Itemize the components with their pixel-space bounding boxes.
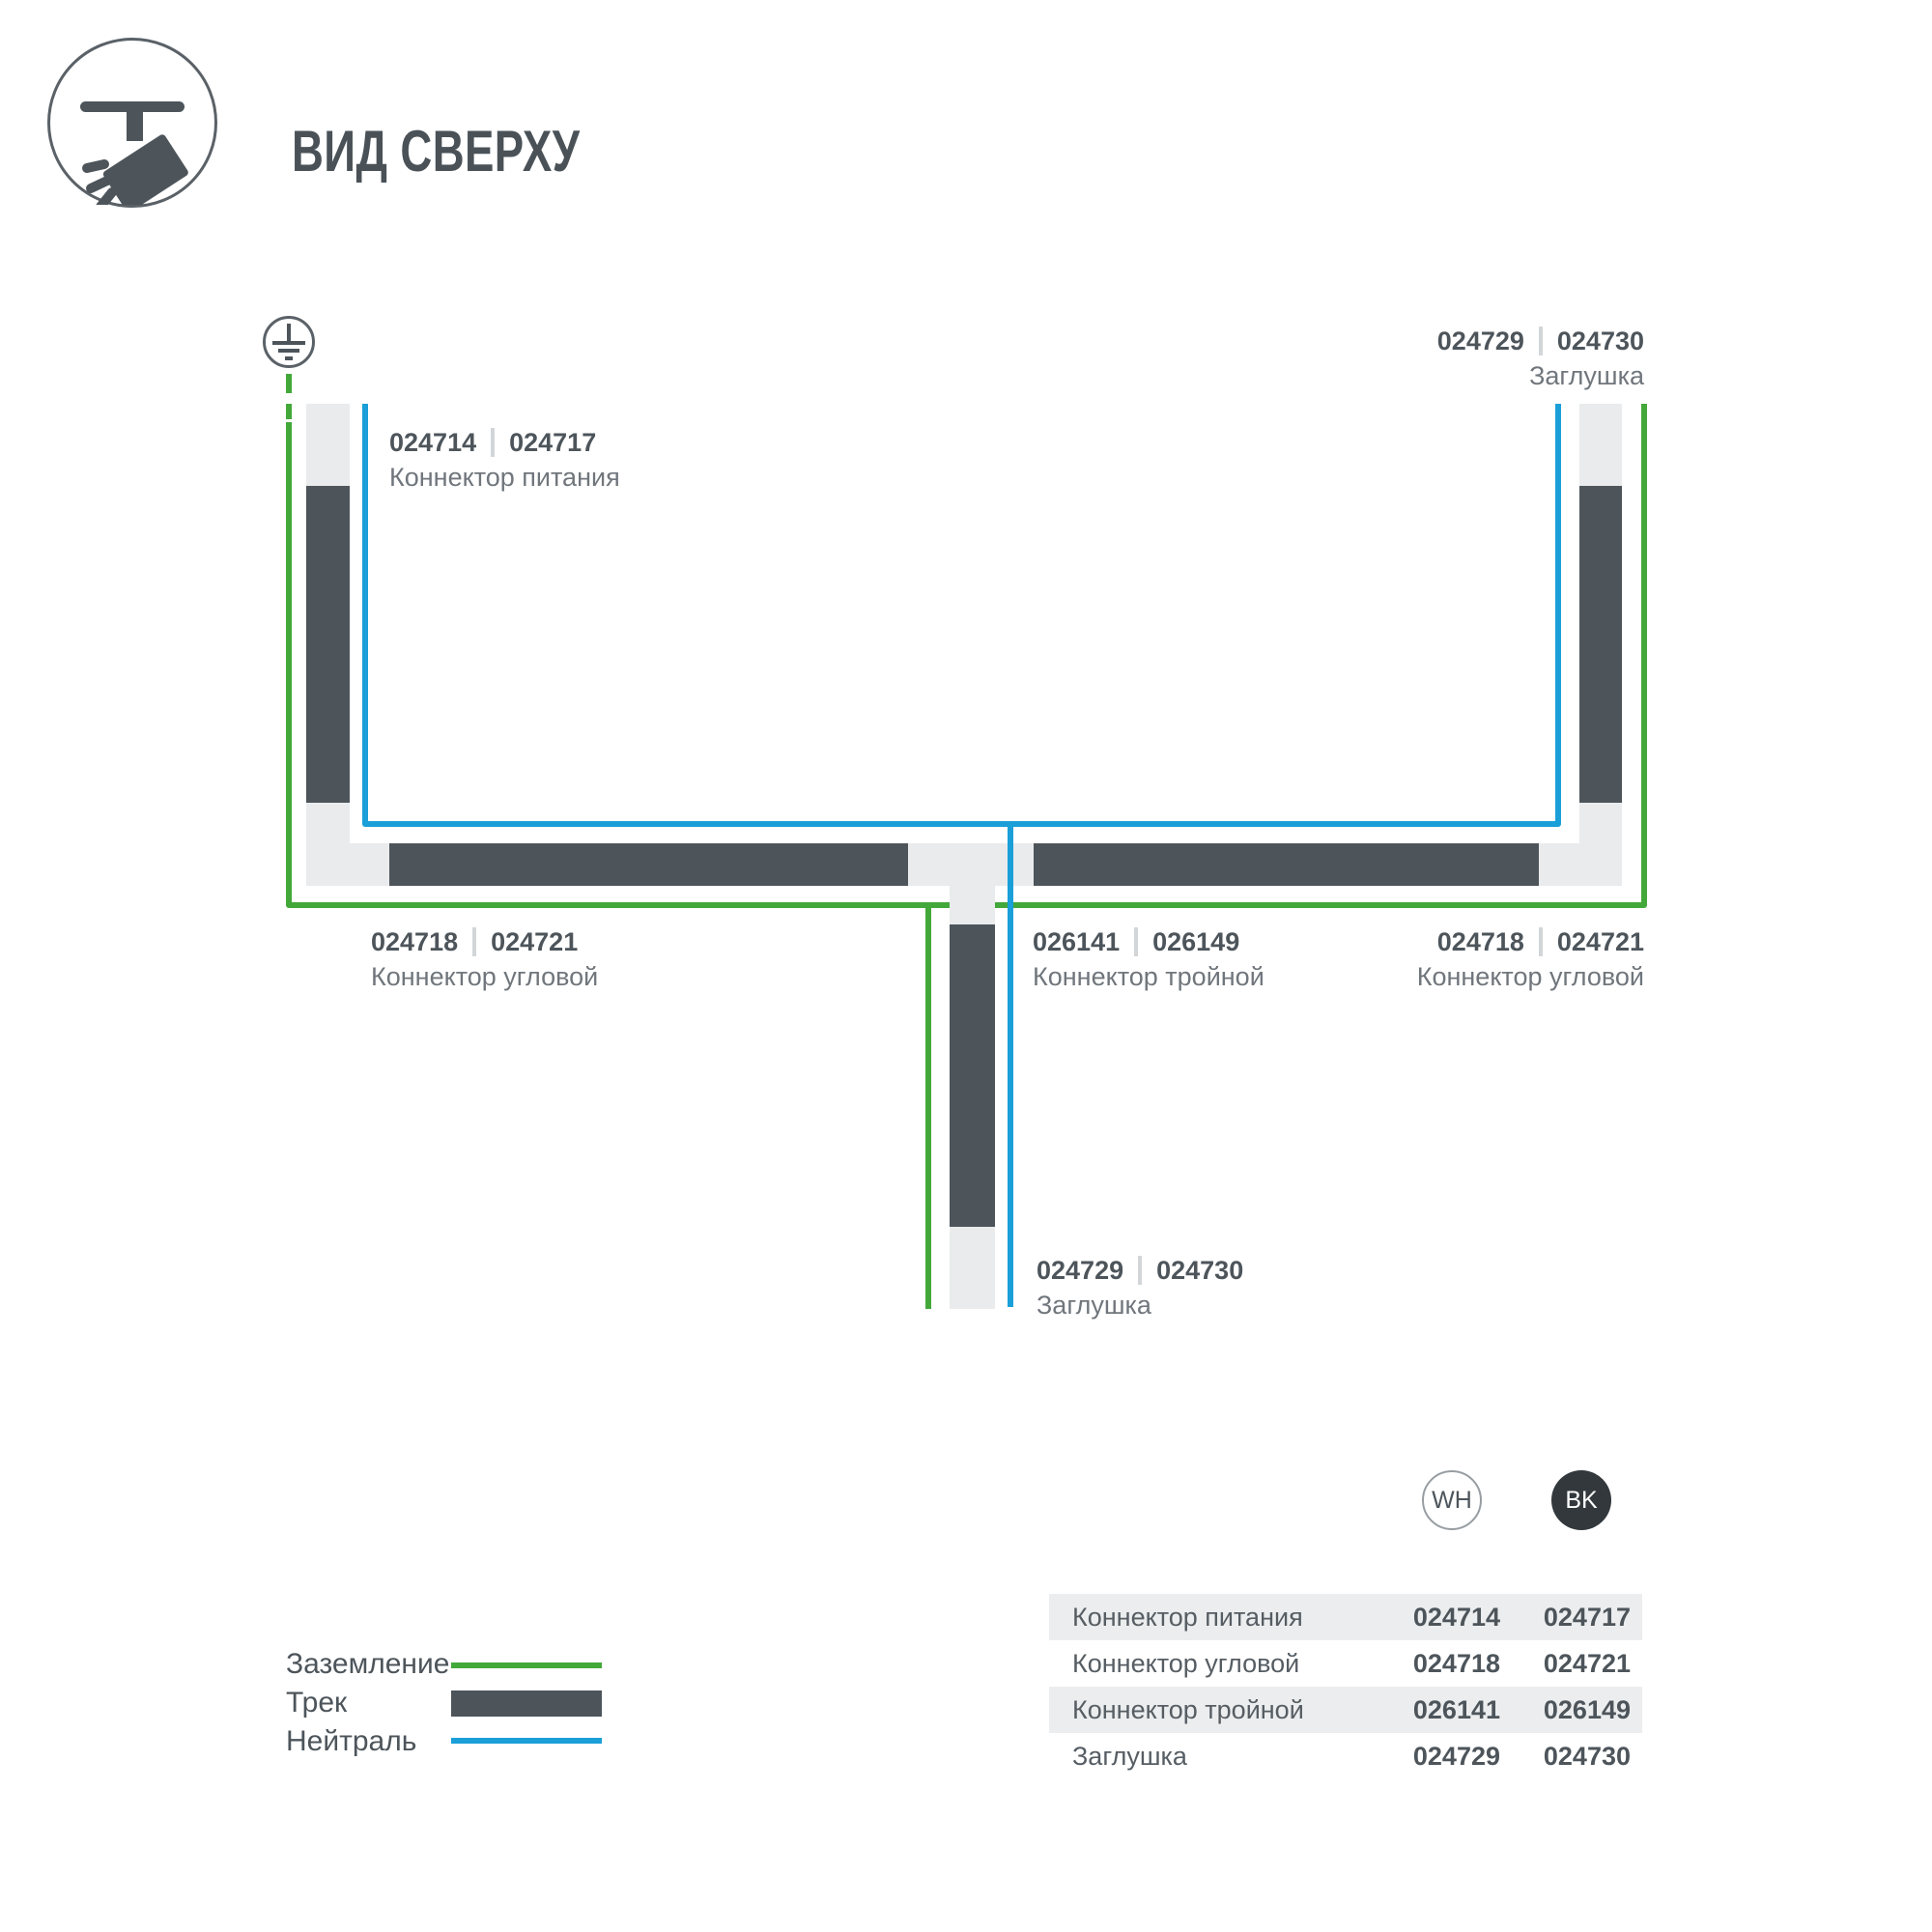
part-code-wh: 024729 [1384, 1742, 1500, 1772]
table-row: Коннектор тройной 026141 026149 [1049, 1687, 1642, 1733]
label-end-cap-top-codes: 024729 024730 [1437, 325, 1644, 357]
label-end-cap-top: 024729 024730 Заглушка [1437, 325, 1644, 392]
label-triple-connector: 026141 026149 Коннектор тройной [1033, 925, 1264, 993]
part-code-wh: 024718 [1384, 1649, 1500, 1679]
label-triple-connector-name: Коннектор тройной [1033, 960, 1264, 993]
code-separator [1539, 327, 1543, 355]
part-name: Заглушка [1072, 1742, 1384, 1772]
code-bk: 024717 [509, 428, 596, 458]
label-end-cap-top-name: Заглушка [1437, 359, 1644, 392]
table-row: Заглушка 024729 024730 [1049, 1733, 1642, 1779]
label-end-cap-bottom-codes: 024729 024730 [1037, 1254, 1243, 1287]
page: ВИД СВЕРХУ [0, 0, 1932, 1932]
code-separator [1539, 927, 1543, 956]
part-name: Коннектор угловой [1072, 1649, 1384, 1679]
code-separator [1138, 1256, 1142, 1285]
label-power-connector-name: Коннектор питания [389, 461, 620, 494]
code-separator [1134, 927, 1138, 956]
code-bk: 024730 [1557, 327, 1644, 356]
parts-table: Коннектор питания 024714 024717 Коннекто… [1049, 1594, 1642, 1779]
part-name: Коннектор питания [1072, 1603, 1384, 1633]
code-wh: 024718 [1437, 927, 1524, 957]
part-code-bk: 024730 [1500, 1742, 1631, 1772]
code-wh: 024718 [371, 927, 458, 957]
label-triple-connector-codes: 026141 026149 [1033, 925, 1264, 958]
code-separator [472, 927, 476, 956]
part-code-bk: 024721 [1500, 1649, 1631, 1679]
label-end-cap-bottom: 024729 024730 Заглушка [1037, 1254, 1243, 1321]
code-bk: 024730 [1156, 1256, 1243, 1286]
part-name: Коннектор тройной [1072, 1695, 1384, 1725]
part-code-bk: 024717 [1500, 1603, 1631, 1633]
ground-icon [263, 316, 315, 368]
code-bk: 024721 [491, 927, 578, 957]
label-power-connector-codes: 024714 024717 [389, 426, 620, 459]
label-corner-left-codes: 024718 024721 [371, 925, 598, 958]
label-corner-right-name: Коннектор угловой [1417, 960, 1644, 993]
label-corner-right-codes: 024718 024721 [1417, 925, 1644, 958]
label-corner-left: 024718 024721 Коннектор угловой [371, 925, 598, 993]
code-bk: 026149 [1152, 927, 1239, 957]
ground-icon-art [266, 319, 312, 365]
label-power-connector: 024714 024717 Коннектор питания [389, 426, 620, 494]
code-wh: 024714 [389, 428, 476, 458]
part-code-bk: 026149 [1500, 1695, 1631, 1725]
code-bk: 024721 [1557, 927, 1644, 957]
label-corner-right: 024718 024721 Коннектор угловой [1417, 925, 1644, 993]
part-code-wh: 026141 [1384, 1695, 1500, 1725]
label-corner-left-name: Коннектор угловой [371, 960, 598, 993]
table-row: Коннектор питания 024714 024717 [1049, 1594, 1642, 1640]
code-separator [491, 428, 495, 457]
part-code-wh: 024714 [1384, 1603, 1500, 1633]
code-wh: 026141 [1033, 927, 1120, 957]
label-end-cap-bottom-name: Заглушка [1037, 1289, 1243, 1321]
table-row: Коннектор угловой 024718 024721 [1049, 1640, 1642, 1687]
code-wh: 024729 [1437, 327, 1524, 356]
code-wh: 024729 [1037, 1256, 1123, 1286]
